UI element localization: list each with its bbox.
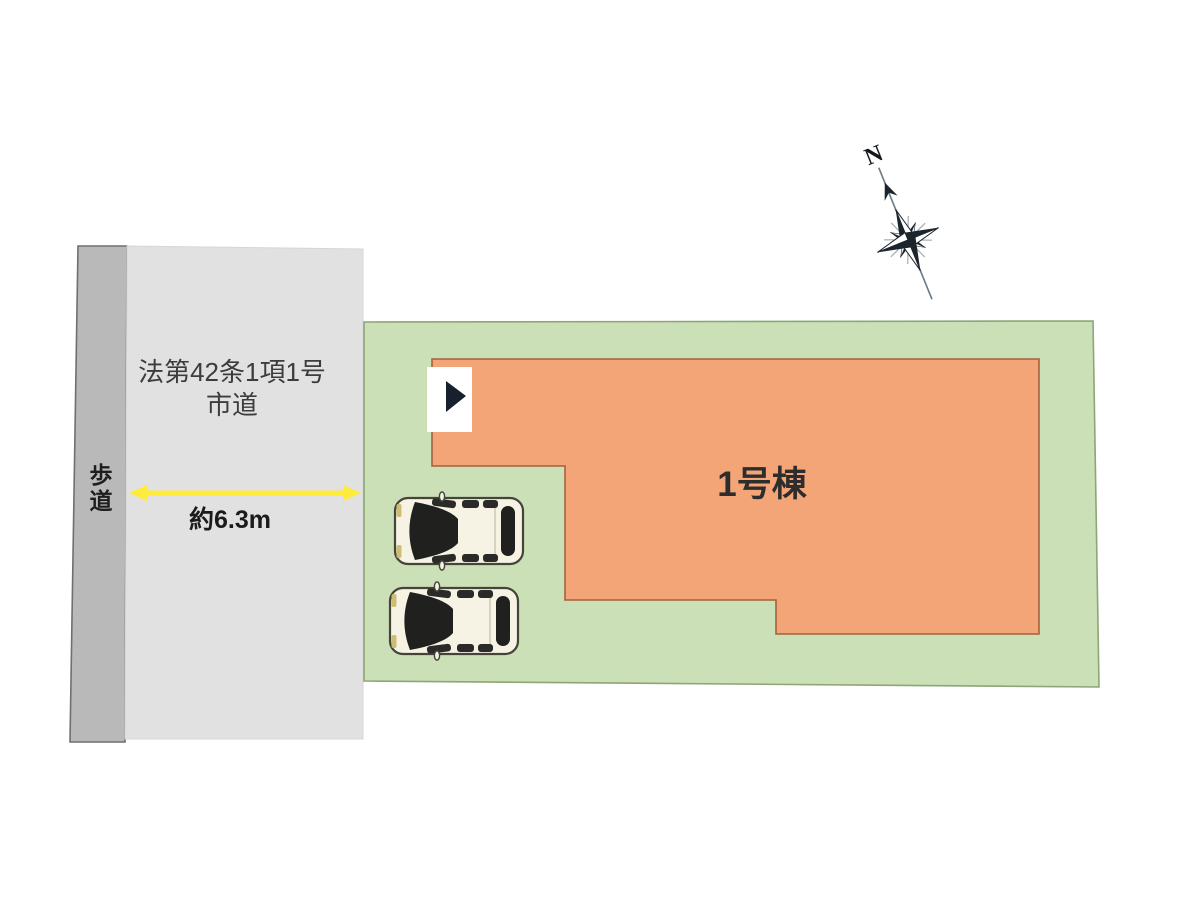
car-icon (390, 582, 518, 660)
site-plan: N 法第42条1項1号 市道 歩道 約6.3m 1号棟 (0, 0, 1200, 900)
building-label: 1号棟 (672, 456, 852, 507)
compass-north-label: N (861, 140, 887, 171)
compass-rose-icon: N (838, 131, 962, 311)
compass-needle-dart (878, 180, 897, 201)
compass-main-points (865, 197, 951, 283)
site-plan-drawing: N (0, 0, 1200, 900)
car-icon (395, 492, 523, 570)
road-name-line1: 法第42条1項1号 (112, 356, 352, 389)
road-width-label: 約6.3m (150, 500, 310, 536)
sidewalk-label: 歩道 (82, 463, 116, 515)
road-name-label: 法第42条1項1号 市道 (112, 356, 352, 422)
road-name-line2: 市道 (112, 389, 352, 422)
entrance-marker (427, 367, 472, 432)
